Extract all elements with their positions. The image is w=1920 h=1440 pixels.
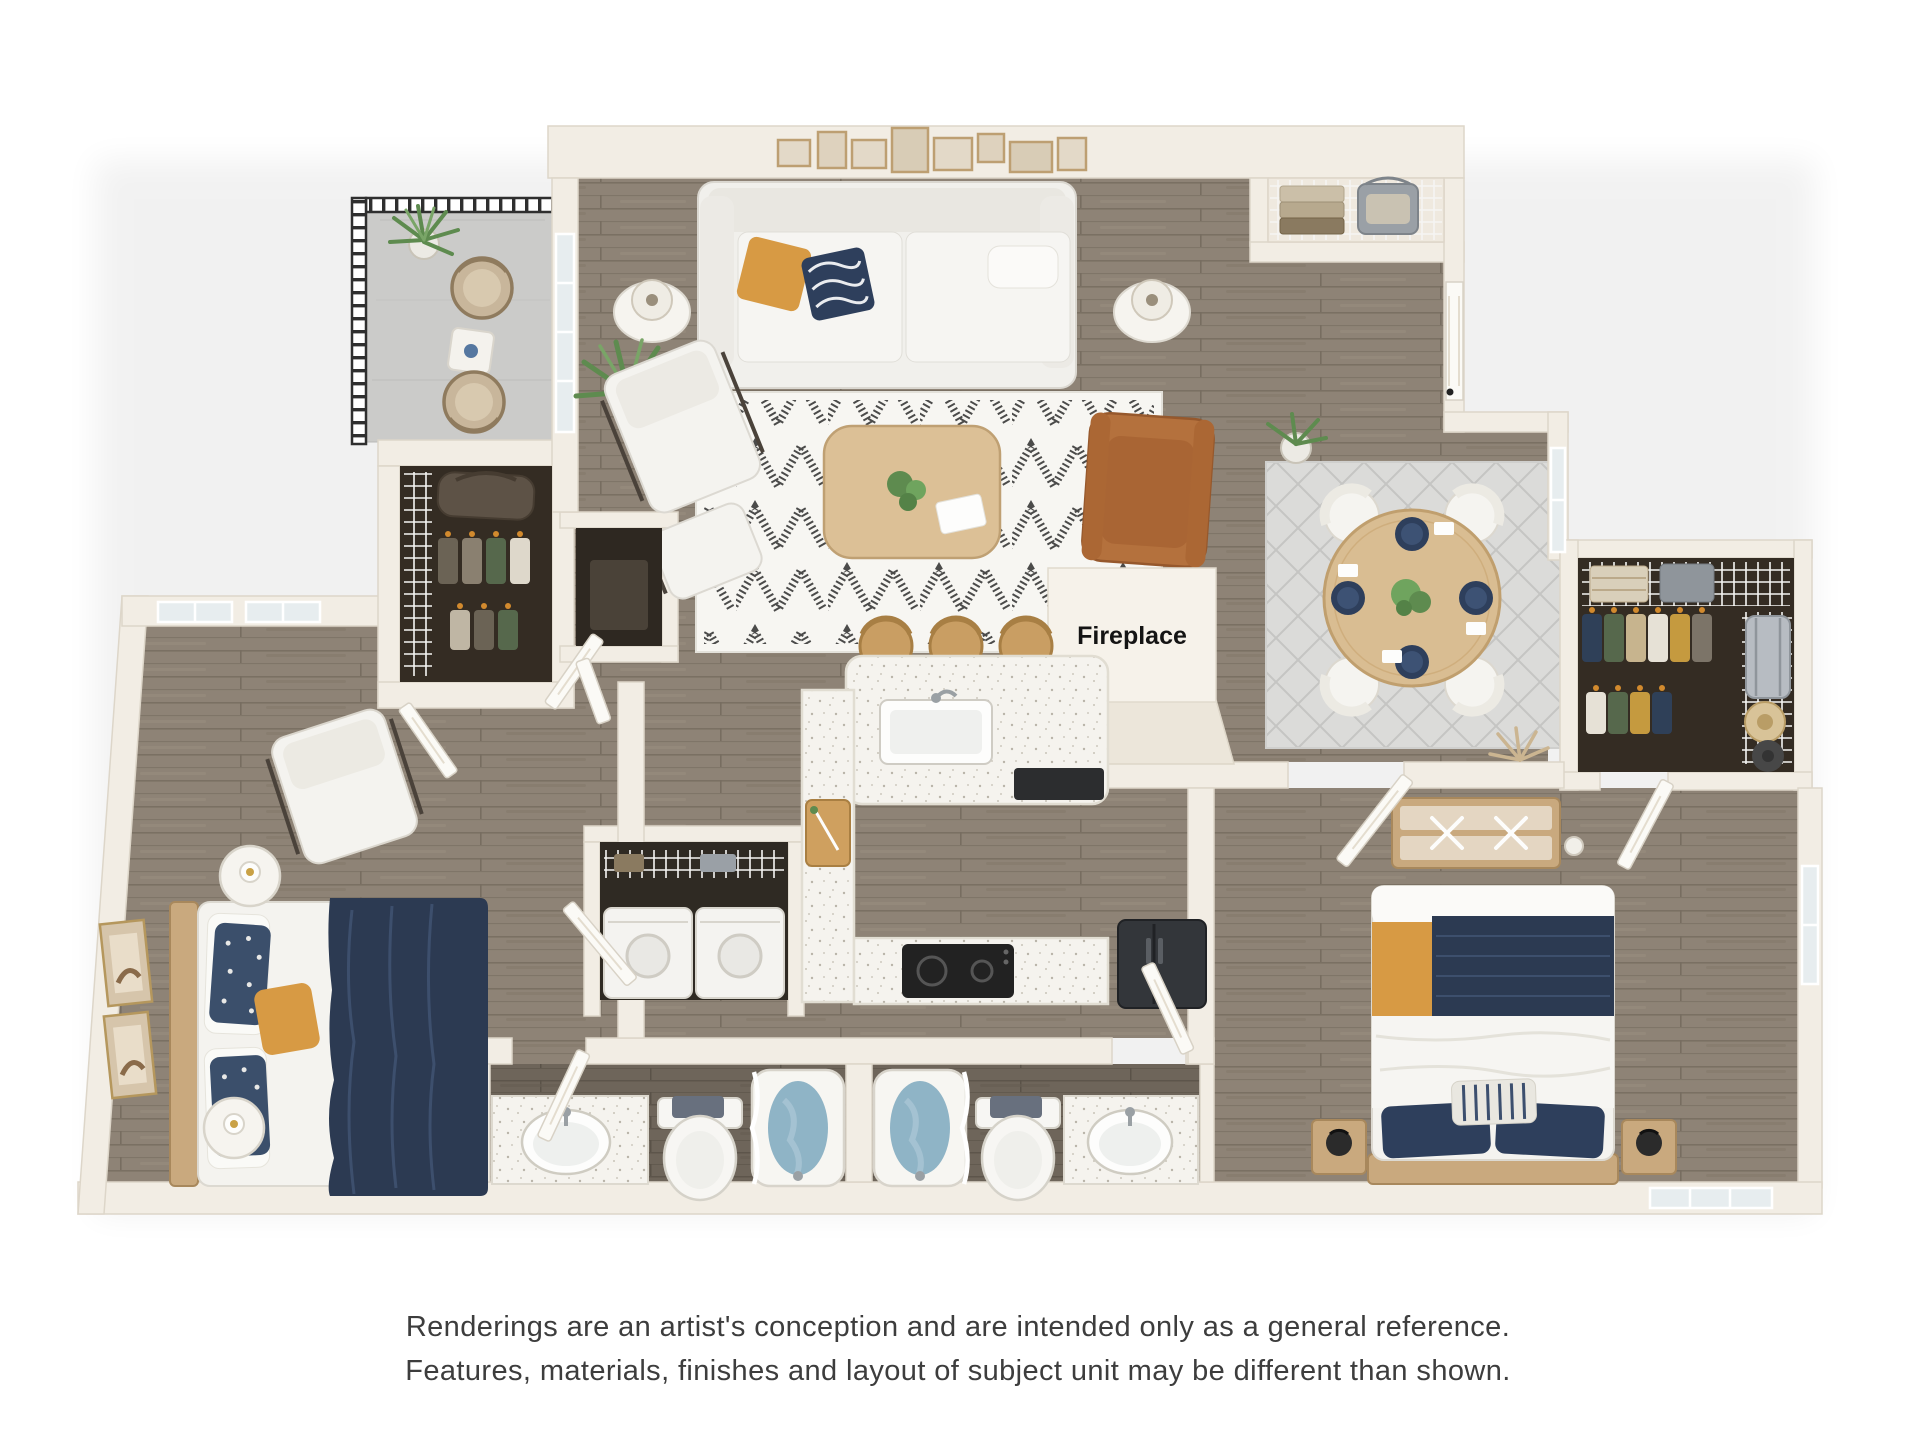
disclaimer-line-1: Renderings are an artist's conception an…	[406, 1311, 1510, 1343]
dishwasher	[1014, 768, 1104, 800]
folded-towels	[1280, 186, 1344, 234]
bedroom1-nightstand-top	[220, 846, 280, 906]
orange-accent-pillow	[253, 981, 322, 1056]
wall-corridor-b	[586, 1038, 1112, 1064]
bath2-towel	[990, 1096, 1042, 1118]
wall-closet-top	[1560, 540, 1812, 558]
wall-closet-left	[1560, 540, 1578, 790]
floor-plan-rendering: Fireplace	[0, 0, 1920, 1440]
bedroom1-window-1	[158, 602, 232, 622]
walkin-basket	[1660, 564, 1714, 602]
bath2-tub	[874, 1070, 968, 1186]
floor-entry	[1188, 262, 1444, 412]
walk-in-closet	[1578, 558, 1794, 772]
balcony-wicker-chair-1	[452, 258, 512, 318]
bedroom2-nightstand-right	[1622, 1120, 1676, 1174]
closet1-shelves	[404, 472, 432, 676]
bath1-tub	[752, 1070, 844, 1186]
bedroom1-wall-art-1	[100, 920, 152, 1006]
sofa	[698, 182, 1076, 388]
dryer	[696, 908, 784, 998]
bedroom1-wall-art-2	[104, 1012, 156, 1098]
striped-pillow	[1451, 1079, 1536, 1126]
balcony	[352, 198, 562, 444]
floor-plan-page: Fireplace	[0, 0, 1920, 1440]
bedroom2-dresser	[1392, 798, 1583, 868]
wall-closet-bottom-a	[1560, 772, 1600, 790]
leather-armchair	[1081, 412, 1215, 568]
kitchen-sink	[880, 691, 992, 764]
wall-laundry-top	[584, 826, 804, 842]
bedroom1-closet	[400, 466, 552, 682]
bath2-toilet	[976, 1096, 1060, 1200]
vase	[1565, 837, 1583, 855]
coffee-table	[824, 426, 1000, 558]
bedroom1-window-2	[246, 602, 320, 622]
bath1-towel	[672, 1096, 724, 1118]
wall-linen-left	[1250, 178, 1268, 246]
wall-utility-top	[560, 512, 678, 528]
bedroom2-window-bottom	[1650, 1188, 1772, 1208]
white-pillow	[988, 246, 1058, 288]
entry-door	[1446, 282, 1463, 400]
wall-closet-bottom-b	[1668, 772, 1812, 790]
wall-bedroom2-right	[1798, 788, 1822, 1188]
door-knob	[1447, 389, 1454, 396]
balcony-side-table	[447, 327, 494, 374]
wall-bath-divider	[846, 1064, 872, 1182]
dining-window	[1551, 448, 1565, 552]
wall-dining-south-a	[1104, 762, 1288, 788]
wall-top	[548, 126, 1464, 178]
bedroom1-nightstand-bottom	[204, 1098, 264, 1158]
bath1-toilet	[658, 1096, 742, 1200]
headboard	[170, 902, 198, 1186]
storage-basket	[1358, 178, 1418, 234]
wall-dining-south-b	[1404, 762, 1564, 788]
wall-closet1-left	[378, 466, 400, 708]
cutting-board	[806, 800, 850, 866]
round-dining-table	[1324, 510, 1500, 686]
navy-pattern-pillow	[800, 246, 876, 322]
navy-duvet	[328, 898, 488, 1196]
balcony-wicker-chair-2	[444, 372, 504, 432]
sliding-glass-door	[556, 234, 574, 432]
linen-closet	[1268, 178, 1444, 242]
bedroom2-window-right	[1802, 866, 1818, 984]
wall-linen-bottom	[1250, 242, 1464, 262]
disclaimer-line-2: Features, materials, finishes and layout…	[405, 1355, 1510, 1387]
wall-closet-right	[1794, 540, 1812, 790]
wall-bath2-side	[1200, 1064, 1214, 1182]
bedroom2-bed	[1368, 886, 1618, 1184]
balcony-railing-top	[366, 198, 562, 212]
walkin-towels	[1590, 566, 1648, 602]
fireplace-label: Fireplace	[1077, 622, 1187, 650]
suitcase	[1746, 616, 1790, 698]
utility-unit	[590, 560, 648, 630]
wall-closet1-top	[378, 440, 574, 466]
utility-closet	[576, 528, 662, 646]
cooktop	[902, 944, 1014, 998]
duffel-bag	[437, 472, 535, 521]
balcony-railing-left	[352, 198, 366, 444]
bedroom2-nightstand-left	[1312, 1120, 1366, 1174]
